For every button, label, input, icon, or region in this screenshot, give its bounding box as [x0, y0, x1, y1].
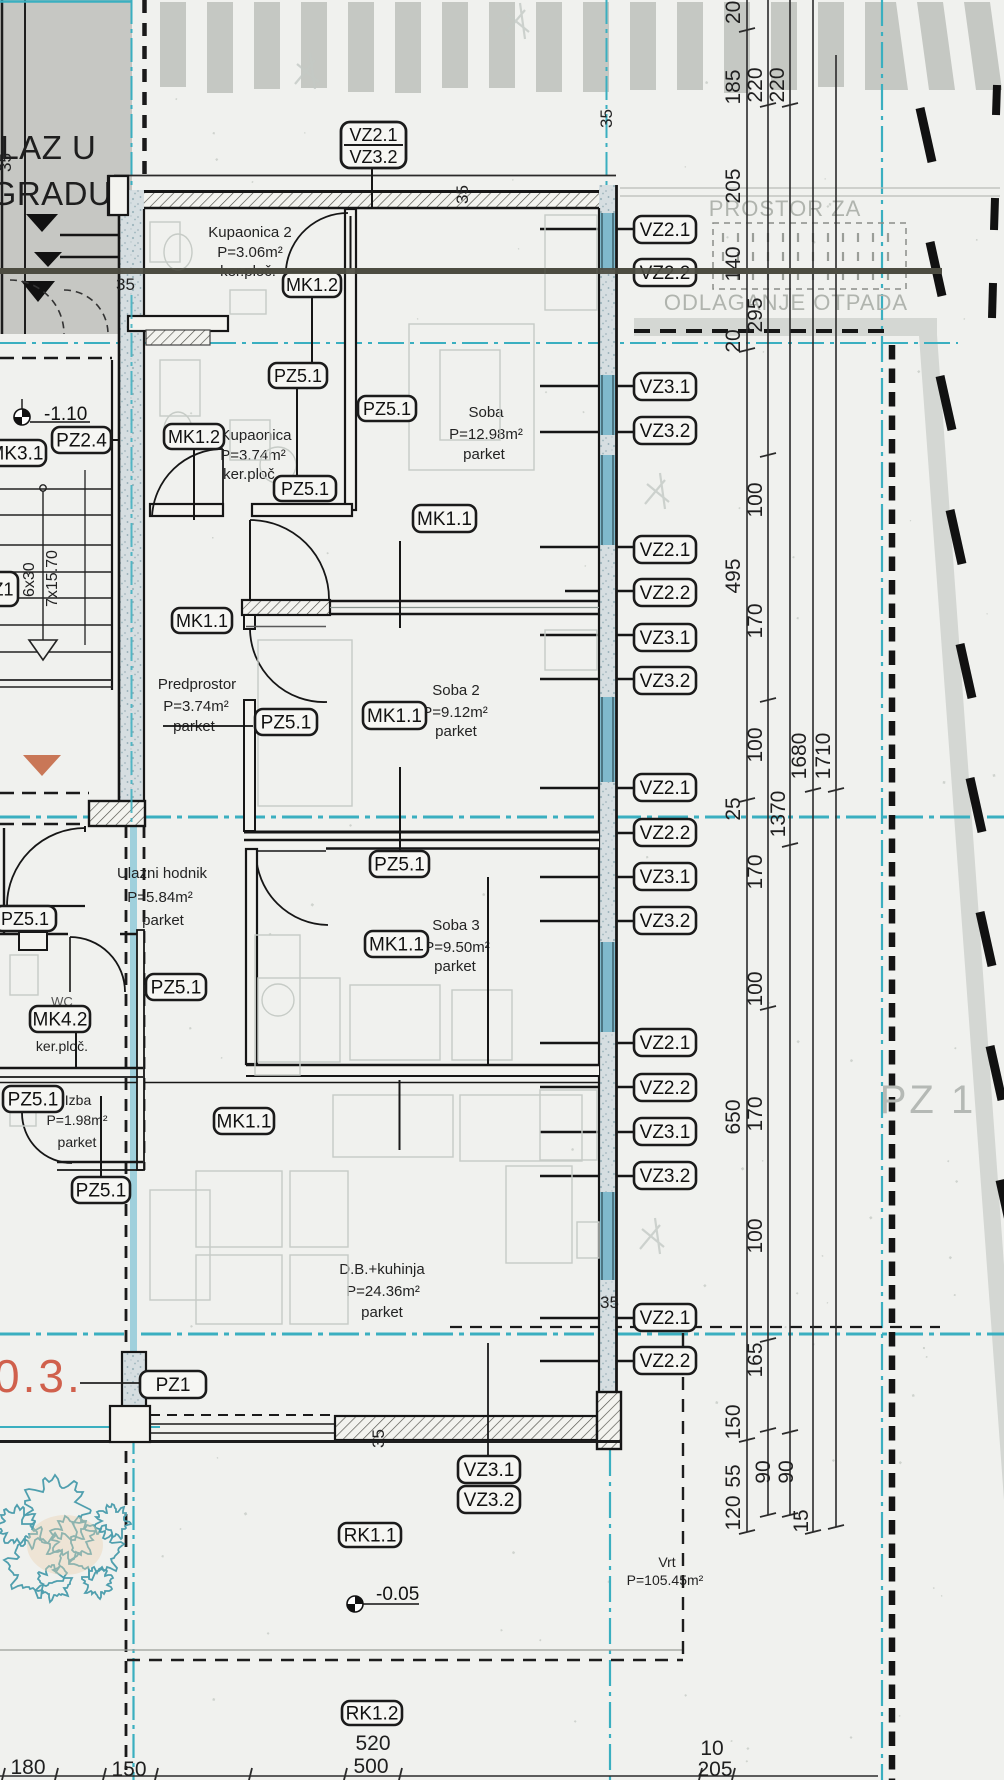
- svg-text:PZ1: PZ1: [156, 1375, 191, 1396]
- svg-text:35: 35: [116, 275, 135, 294]
- svg-text:35: 35: [0, 153, 15, 172]
- svg-text:PZ5.1: PZ5.1: [374, 855, 425, 876]
- svg-text:parket: parket: [142, 912, 185, 929]
- svg-text:170: 170: [744, 854, 767, 889]
- svg-text:170: 170: [744, 603, 767, 638]
- svg-text:PZ5.1: PZ5.1: [151, 978, 202, 999]
- svg-text:Izba: Izba: [65, 1092, 92, 1108]
- svg-text:ker.ploč.: ker.ploč.: [223, 466, 279, 483]
- svg-text:PZ5.1: PZ5.1: [363, 399, 411, 419]
- svg-text:100: 100: [744, 971, 767, 1006]
- svg-text:ker.ploč.: ker.ploč.: [36, 1038, 88, 1054]
- svg-text:150: 150: [111, 1758, 146, 1780]
- svg-text:1680: 1680: [788, 733, 811, 780]
- svg-text:parket: parket: [434, 958, 477, 975]
- svg-text:VZ3.2: VZ3.2: [349, 147, 397, 167]
- svg-text:165: 165: [744, 1342, 767, 1377]
- svg-text:220: 220: [766, 67, 789, 102]
- svg-text:VZ2.2: VZ2.2: [640, 583, 691, 604]
- svg-text:P=3.74m²: P=3.74m²: [163, 698, 228, 715]
- svg-text:MK1.2: MK1.2: [168, 427, 220, 447]
- svg-text:P=24.36m²: P=24.36m²: [346, 1283, 420, 1300]
- svg-text:Predprostor: Predprostor: [158, 676, 236, 693]
- svg-text:P=1.98m²: P=1.98m²: [46, 1112, 107, 1128]
- svg-text:100: 100: [744, 727, 767, 762]
- svg-text:PZ5.1: PZ5.1: [261, 713, 312, 734]
- svg-text:VZ2.1: VZ2.1: [640, 1308, 691, 1329]
- svg-text:Soba 2: Soba 2: [432, 682, 480, 699]
- svg-text:6x30: 6x30: [21, 562, 38, 597]
- svg-text:PZ5.1: PZ5.1: [281, 479, 329, 499]
- svg-text:0.3.: 0.3.: [0, 1350, 83, 1402]
- svg-text:parket: parket: [361, 1304, 404, 1321]
- svg-text:100: 100: [744, 482, 767, 517]
- svg-text:VZ2.2: VZ2.2: [640, 823, 691, 844]
- svg-text:500: 500: [353, 1755, 388, 1778]
- svg-text:VZ3.2: VZ3.2: [640, 671, 691, 692]
- svg-text:VZ2.1: VZ2.1: [640, 778, 691, 799]
- svg-text:MK1.1: MK1.1: [217, 1112, 272, 1133]
- svg-text:PZ5.1: PZ5.1: [76, 1181, 127, 1202]
- svg-text:parket: parket: [58, 1134, 97, 1150]
- svg-text:Z1: Z1: [0, 580, 14, 600]
- svg-text:185: 185: [722, 69, 745, 104]
- svg-text:20: 20: [722, 329, 745, 352]
- svg-text:VZ3.2: VZ3.2: [640, 421, 691, 442]
- svg-text:Vrt: Vrt: [658, 1554, 675, 1570]
- svg-text:180: 180: [10, 1756, 45, 1779]
- svg-text:Kupaonica: Kupaonica: [221, 427, 293, 444]
- svg-text:170: 170: [744, 1096, 767, 1131]
- svg-text:35: 35: [369, 1429, 388, 1448]
- svg-text:495: 495: [722, 558, 745, 593]
- svg-text:220: 220: [744, 67, 767, 102]
- svg-text:Kupaonica 2: Kupaonica 2: [208, 224, 291, 241]
- svg-text:650: 650: [722, 1099, 745, 1134]
- svg-text:295: 295: [744, 297, 767, 332]
- svg-text:VZ2.1: VZ2.1: [640, 1033, 691, 1054]
- svg-text:MK4.2: MK4.2: [33, 1010, 88, 1031]
- svg-text:VZ2.1: VZ2.1: [349, 125, 397, 145]
- svg-text:120: 120: [722, 1495, 745, 1530]
- svg-text:VZ2.1: VZ2.1: [640, 220, 691, 241]
- svg-text:Soba: Soba: [468, 404, 504, 421]
- svg-text:Ulazni hodnik: Ulazni hodnik: [117, 865, 208, 882]
- svg-text:parket: parket: [435, 723, 478, 740]
- svg-text:35: 35: [453, 185, 472, 204]
- svg-text:PZ2.4: PZ2.4: [56, 431, 107, 452]
- svg-text:RK1.1: RK1.1: [344, 1526, 397, 1547]
- svg-text:VZ2.2: VZ2.2: [640, 1351, 691, 1372]
- svg-text:20: 20: [722, 1, 745, 24]
- svg-text:150: 150: [722, 1404, 745, 1439]
- svg-text:205: 205: [722, 168, 745, 203]
- svg-text:VZ3.2: VZ3.2: [464, 1490, 515, 1511]
- svg-text:Soba 3: Soba 3: [432, 917, 480, 934]
- svg-text:7x15.70: 7x15.70: [44, 550, 61, 607]
- svg-text:P=9.50m²: P=9.50m²: [424, 939, 489, 956]
- svg-text:VZ3.2: VZ3.2: [640, 911, 691, 932]
- svg-text:205: 205: [697, 1758, 732, 1780]
- svg-text:VZ3.1: VZ3.1: [640, 867, 691, 888]
- svg-text:VZ3.1: VZ3.1: [640, 377, 691, 398]
- svg-text:90: 90: [752, 1460, 775, 1483]
- svg-text:1370: 1370: [767, 791, 790, 838]
- svg-text:VZ2.1: VZ2.1: [640, 540, 691, 561]
- svg-text:D.B.+kuhinja: D.B.+kuhinja: [339, 1261, 425, 1278]
- svg-text:PZ5.1: PZ5.1: [1, 909, 49, 929]
- svg-text:MK3.1: MK3.1: [0, 444, 43, 465]
- svg-text:520: 520: [355, 1732, 390, 1755]
- svg-text:15: 15: [790, 1509, 813, 1532]
- svg-text:90: 90: [775, 1460, 798, 1483]
- svg-text:MK1.1: MK1.1: [417, 509, 472, 530]
- svg-text:VZ2.2: VZ2.2: [640, 1078, 691, 1099]
- svg-text:10: 10: [700, 1737, 723, 1760]
- svg-text:MK1.1: MK1.1: [369, 935, 424, 956]
- svg-text:VZ3.1: VZ3.1: [464, 1460, 515, 1481]
- svg-text:MK1.1: MK1.1: [367, 706, 422, 727]
- svg-text:VZ3.2: VZ3.2: [640, 1166, 691, 1187]
- svg-text:55: 55: [722, 1464, 745, 1487]
- svg-text:P=5.84m²: P=5.84m²: [127, 889, 192, 906]
- svg-text:VZ3.1: VZ3.1: [640, 628, 691, 649]
- svg-text:MK1.1: MK1.1: [176, 611, 228, 631]
- svg-text:RK1.2: RK1.2: [346, 1704, 399, 1725]
- svg-text:140: 140: [722, 246, 745, 281]
- svg-text:parket: parket: [463, 446, 506, 463]
- svg-text:1710: 1710: [812, 733, 835, 780]
- svg-text:ODLAGANJE OTPADA: ODLAGANJE OTPADA: [664, 290, 908, 315]
- svg-text:VZ3.1: VZ3.1: [640, 1122, 691, 1143]
- svg-text:P=105.45m²: P=105.45m²: [627, 1572, 704, 1588]
- svg-text:PZ 1: PZ 1: [880, 1078, 976, 1122]
- svg-text:PZ5.1: PZ5.1: [8, 1090, 59, 1111]
- svg-text:MK1.2: MK1.2: [286, 275, 338, 295]
- svg-text:PZ5.1: PZ5.1: [274, 366, 322, 386]
- svg-text:-0.05: -0.05: [376, 1584, 419, 1605]
- svg-text:100: 100: [744, 1218, 767, 1253]
- svg-text:P=9.12m²: P=9.12m²: [422, 704, 487, 721]
- svg-text:-1.10: -1.10: [44, 404, 87, 425]
- svg-text:ZGRADU: ZGRADU: [0, 175, 112, 212]
- svg-text:35: 35: [600, 1293, 619, 1312]
- svg-text:P=3.06m²: P=3.06m²: [217, 244, 282, 261]
- svg-text:35: 35: [597, 109, 616, 128]
- svg-text:25: 25: [722, 797, 745, 820]
